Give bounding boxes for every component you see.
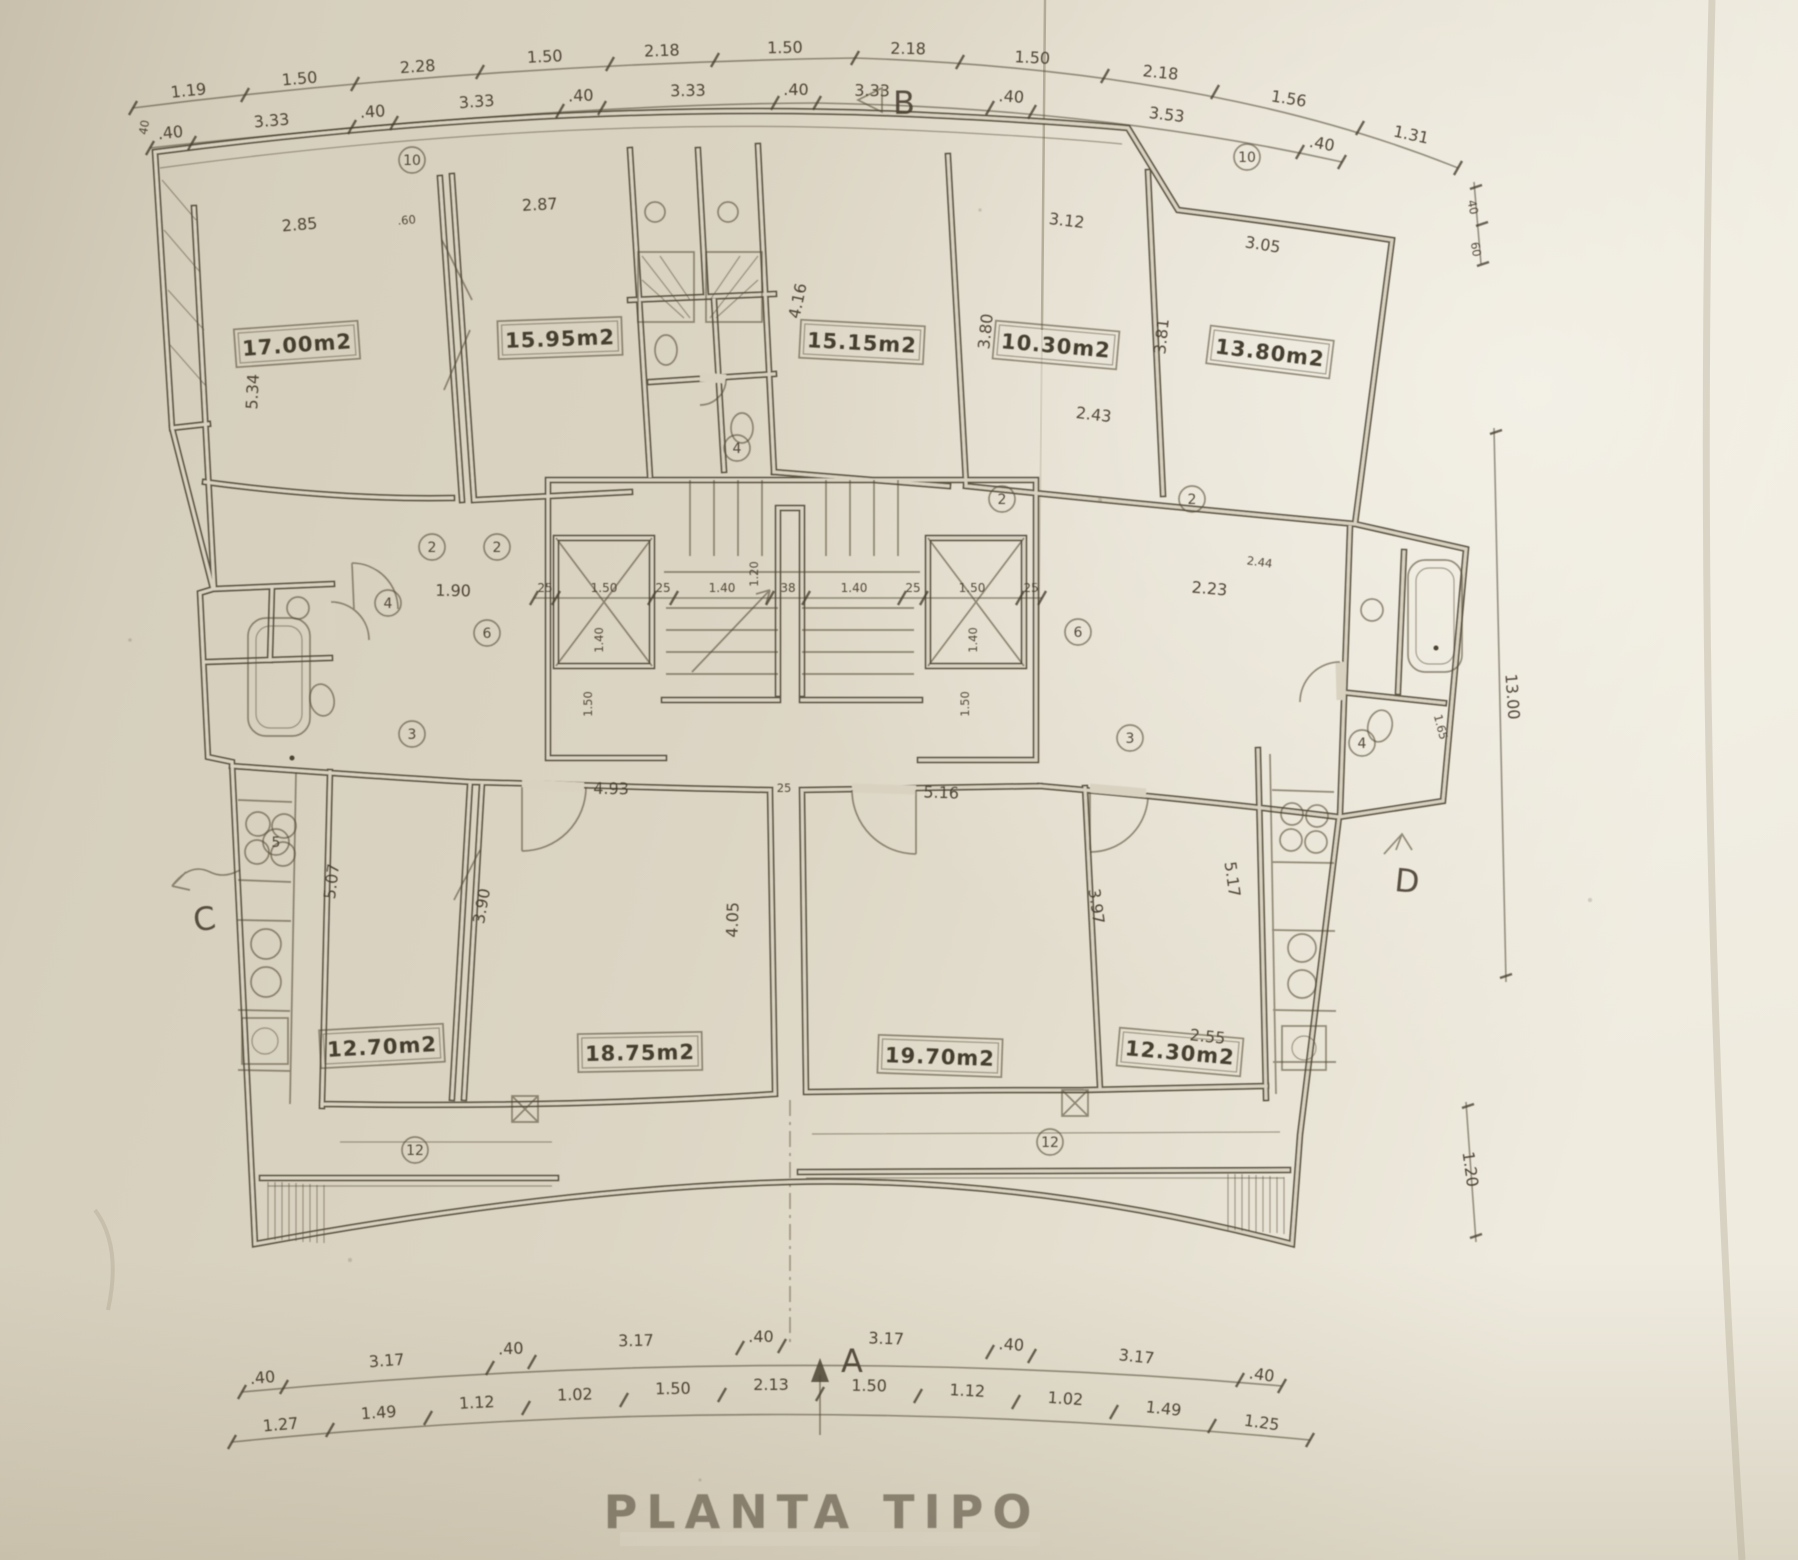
dim-label: 3.33 bbox=[670, 81, 706, 101]
dim-label: 3.33 bbox=[253, 110, 290, 132]
dim-label: 13.00 bbox=[1501, 673, 1523, 720]
dim-label: 1.50 bbox=[526, 46, 563, 67]
dim-label: 1.02 bbox=[557, 1384, 593, 1404]
floor-plan-drawing: 1.19 1.50 2.28 1.50 2.18 1.50 2.18 1.50 … bbox=[0, 0, 1798, 1560]
circled-marker: 4 bbox=[1358, 736, 1367, 752]
circled-marker: 6 bbox=[1074, 625, 1083, 641]
dim-label: 1.50 bbox=[591, 581, 618, 595]
dim-label: 25 bbox=[655, 581, 670, 595]
dim-label: 2.18 bbox=[644, 40, 680, 60]
dim-label: .40 bbox=[748, 1327, 773, 1346]
dim-label: 1.49 bbox=[360, 1402, 397, 1423]
dim-label: 25 bbox=[905, 581, 920, 595]
circled-marker: 6 bbox=[483, 626, 492, 642]
circled-marker: 3 bbox=[408, 727, 417, 743]
dim-label: .40 bbox=[998, 86, 1025, 107]
dim-label: 2.23 bbox=[1191, 578, 1228, 600]
dim-label: 1.50 bbox=[958, 691, 972, 717]
dim-label: .40 bbox=[783, 80, 808, 99]
circled-marker: 2 bbox=[428, 540, 437, 556]
dim-label: 25 bbox=[1023, 581, 1038, 595]
dim-label: 3.17 bbox=[368, 1350, 405, 1371]
circled-marker: 4 bbox=[384, 596, 393, 612]
dim-label: 1.12 bbox=[458, 1392, 495, 1413]
dim-label: .60 bbox=[397, 212, 416, 228]
dim-label: 1.40 bbox=[841, 581, 868, 595]
dim-label: 1.20 bbox=[747, 561, 761, 587]
dim-label: 1.19 bbox=[170, 79, 207, 102]
dim-label: 40 bbox=[1465, 199, 1482, 216]
scanned-blueprint-page: 1.19 1.50 2.28 1.50 2.18 1.50 2.18 1.50 … bbox=[0, 0, 1798, 1560]
dim-label: 25 bbox=[537, 581, 552, 595]
dim-label: 5.34 bbox=[242, 373, 263, 410]
dim-label: 2.85 bbox=[281, 214, 318, 236]
dim-label: 3.17 bbox=[618, 1331, 654, 1351]
circled-marker: 10 bbox=[403, 153, 421, 169]
drawing-title: PLANTA TIPO bbox=[604, 1485, 1041, 1539]
dim-label: .40 bbox=[1248, 1363, 1276, 1385]
dim-label: 3.17 bbox=[868, 1328, 904, 1348]
dim-label: 4.93 bbox=[593, 779, 629, 799]
dim-label: .40 bbox=[359, 101, 386, 122]
room-area-label: 19.70m2 bbox=[885, 1043, 996, 1071]
circled-marker: 12 bbox=[406, 1143, 424, 1159]
dim-label: 1.49 bbox=[1145, 1397, 1182, 1420]
section-d-label: D bbox=[1393, 861, 1421, 901]
title-fade bbox=[620, 1532, 1040, 1546]
circled-marker: 2 bbox=[493, 540, 502, 556]
dim-label: 1.50 bbox=[655, 1379, 691, 1399]
circled-marker: 4 bbox=[733, 441, 742, 457]
dim-label: 1.50 bbox=[959, 581, 986, 595]
dim-label: 1.90 bbox=[435, 581, 471, 601]
dim-label: 2.87 bbox=[521, 194, 558, 215]
section-b-label: B bbox=[893, 84, 915, 122]
dim-label: 1.40 bbox=[966, 627, 980, 653]
dim-label: 3.33 bbox=[854, 81, 890, 101]
dim-label: 2.28 bbox=[399, 56, 436, 77]
dim-label: 1.50 bbox=[581, 691, 595, 717]
dim-label: 5.16 bbox=[923, 782, 959, 802]
dim-label: .40 bbox=[249, 1367, 276, 1388]
dim-label: 3.17 bbox=[1118, 1345, 1155, 1368]
dim-label: 1.02 bbox=[1047, 1388, 1084, 1409]
circled-marker: 5 bbox=[272, 835, 281, 851]
dim-label: 38 bbox=[780, 581, 795, 595]
dim-label: 2.18 bbox=[890, 39, 926, 59]
dim-label: .40 bbox=[998, 1334, 1025, 1355]
dim-label: 1.27 bbox=[262, 1414, 299, 1436]
room-area-label: 18.75m2 bbox=[585, 1040, 695, 1066]
dim-label: .40 bbox=[568, 86, 594, 106]
dim-label: 2.18 bbox=[1142, 61, 1179, 84]
dim-label: 1.12 bbox=[949, 1380, 986, 1401]
dim-label: 1.50 bbox=[767, 38, 803, 58]
dim-label: 1.50 bbox=[281, 68, 318, 90]
dim-label: 60 bbox=[1468, 241, 1484, 258]
circled-marker: 2 bbox=[1188, 492, 1197, 508]
dim-label: .40 bbox=[157, 122, 184, 144]
dim-label: 4.05 bbox=[722, 902, 742, 938]
room-area-label: 15.95m2 bbox=[505, 325, 616, 353]
dim-label: 1.50 bbox=[1014, 47, 1051, 68]
dim-label: .40 bbox=[498, 1339, 524, 1359]
dim-label: 1.40 bbox=[709, 581, 736, 595]
dim-label: 3.81 bbox=[1150, 318, 1173, 355]
circled-marker: 10 bbox=[1238, 150, 1256, 166]
circled-marker: 3 bbox=[1126, 731, 1135, 747]
dim-label: 2.13 bbox=[753, 1375, 789, 1394]
dim-label: 40 bbox=[136, 119, 152, 136]
dim-label: 3.33 bbox=[458, 91, 495, 112]
circled-marker: 12 bbox=[1041, 1135, 1059, 1151]
section-a-label: A bbox=[841, 1342, 863, 1380]
dim-label: 1.40 bbox=[592, 627, 606, 653]
circled-marker: 2 bbox=[998, 492, 1007, 508]
dim-label: 25 bbox=[777, 781, 792, 795]
